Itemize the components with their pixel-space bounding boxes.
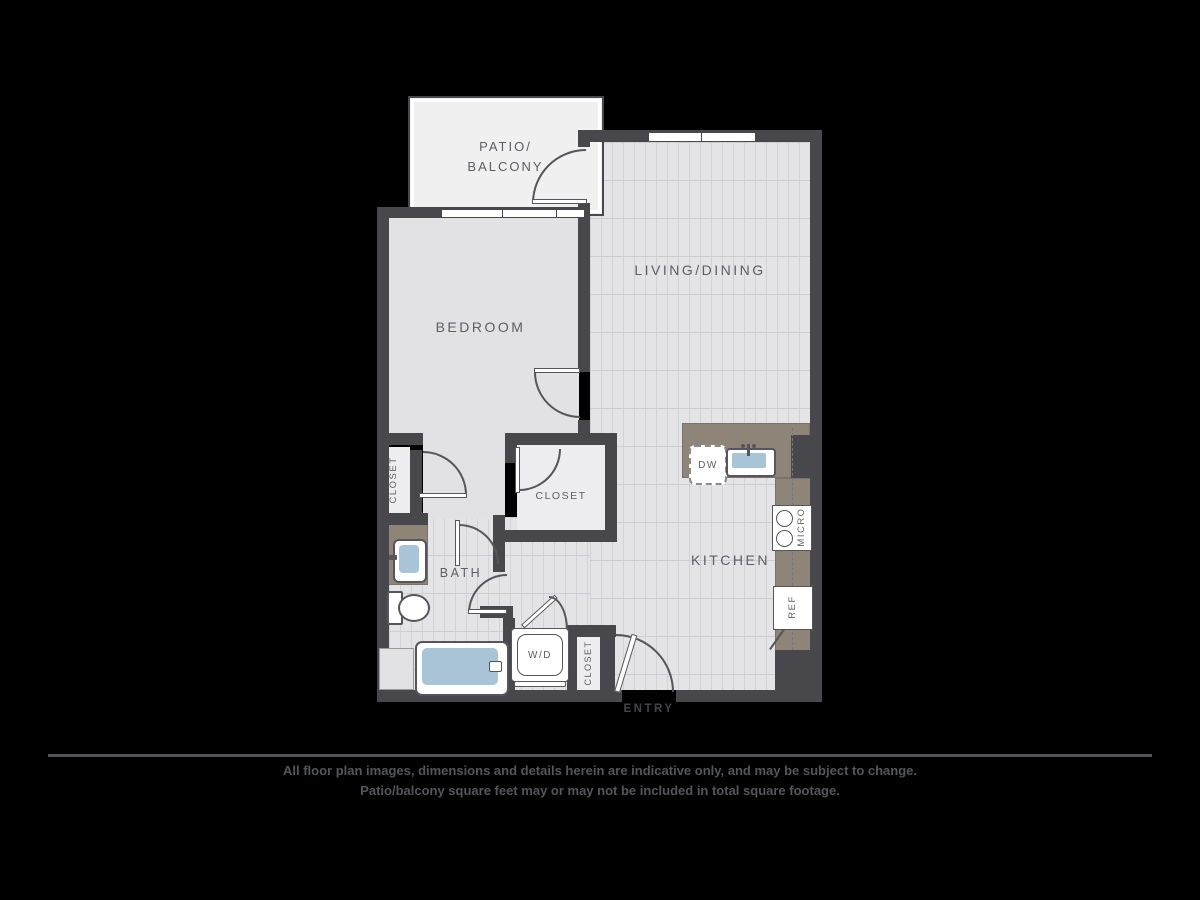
disclaimer-line2: Patio/balcony square feet may or may not…	[0, 783, 1200, 798]
kitchen-label: KITCHEN	[678, 551, 783, 569]
wall-segment	[377, 433, 423, 445]
disclaimer-line1: All floor plan images, dimensions and de…	[0, 763, 1200, 778]
floor-plan-canvas: W/D DW MICRO REF PATIO/ BALCONY LIVING/D…	[0, 0, 1200, 900]
bath-hall-door-leaf	[468, 609, 507, 614]
stove-burner	[776, 530, 793, 547]
patio-label: PATIO/ BALCONY	[428, 137, 583, 177]
bath-door-leaf	[455, 520, 460, 566]
vanity-sink-basin	[399, 545, 419, 573]
patio-door-leaf	[532, 199, 587, 204]
washer-dryer-base	[514, 681, 566, 687]
patio-label-line2: BALCONY	[428, 157, 583, 177]
living-window-mullion	[701, 132, 702, 142]
entry-closet-label: CLOSET	[581, 635, 595, 691]
hall-closet-door-leaf	[515, 447, 520, 493]
bath-label: BATH	[430, 565, 492, 581]
wall-segment	[605, 445, 617, 542]
wall-segment	[775, 650, 822, 702]
wall-segment	[505, 433, 617, 445]
kitchen-faucet	[747, 444, 750, 456]
living-dining-label: LIVING/DINING	[620, 261, 780, 279]
patio-label-line1: PATIO/	[428, 137, 583, 157]
toilet-bowl	[398, 594, 430, 622]
hall-closet-label: CLOSET	[521, 489, 601, 503]
bedroom-label: BEDROOM	[408, 318, 553, 336]
bedroom-closet-label: CLOSET	[386, 452, 400, 508]
wall-segment	[505, 530, 617, 542]
kitchen-faucet-knob	[752, 444, 756, 448]
bathtub-basin	[422, 648, 498, 685]
wall-segment	[377, 513, 428, 525]
wall-segment	[600, 630, 615, 692]
living-window	[648, 132, 756, 142]
bath-linen-niche	[379, 648, 414, 690]
kitchen-faucet-knob	[741, 444, 745, 448]
bedroom-patio-window	[441, 209, 585, 218]
entry-label: ENTRY	[619, 701, 679, 716]
patio-window-mullion	[556, 209, 557, 218]
patio-window-mullion	[502, 209, 503, 218]
microwave-label: MICRO	[794, 500, 808, 554]
bedroom-closet-door-leaf	[419, 493, 467, 498]
dishwasher: DW	[689, 445, 727, 485]
refrigerator-label: REF	[785, 582, 799, 632]
vanity-faucet	[389, 555, 397, 560]
bathtub-faucet	[489, 661, 502, 672]
wall-segment	[410, 450, 422, 515]
stove-burner	[776, 510, 793, 527]
bedroom-door-leaf	[534, 368, 580, 373]
footer-divider	[48, 754, 1152, 757]
washer-dryer-label: W/D	[517, 634, 563, 676]
